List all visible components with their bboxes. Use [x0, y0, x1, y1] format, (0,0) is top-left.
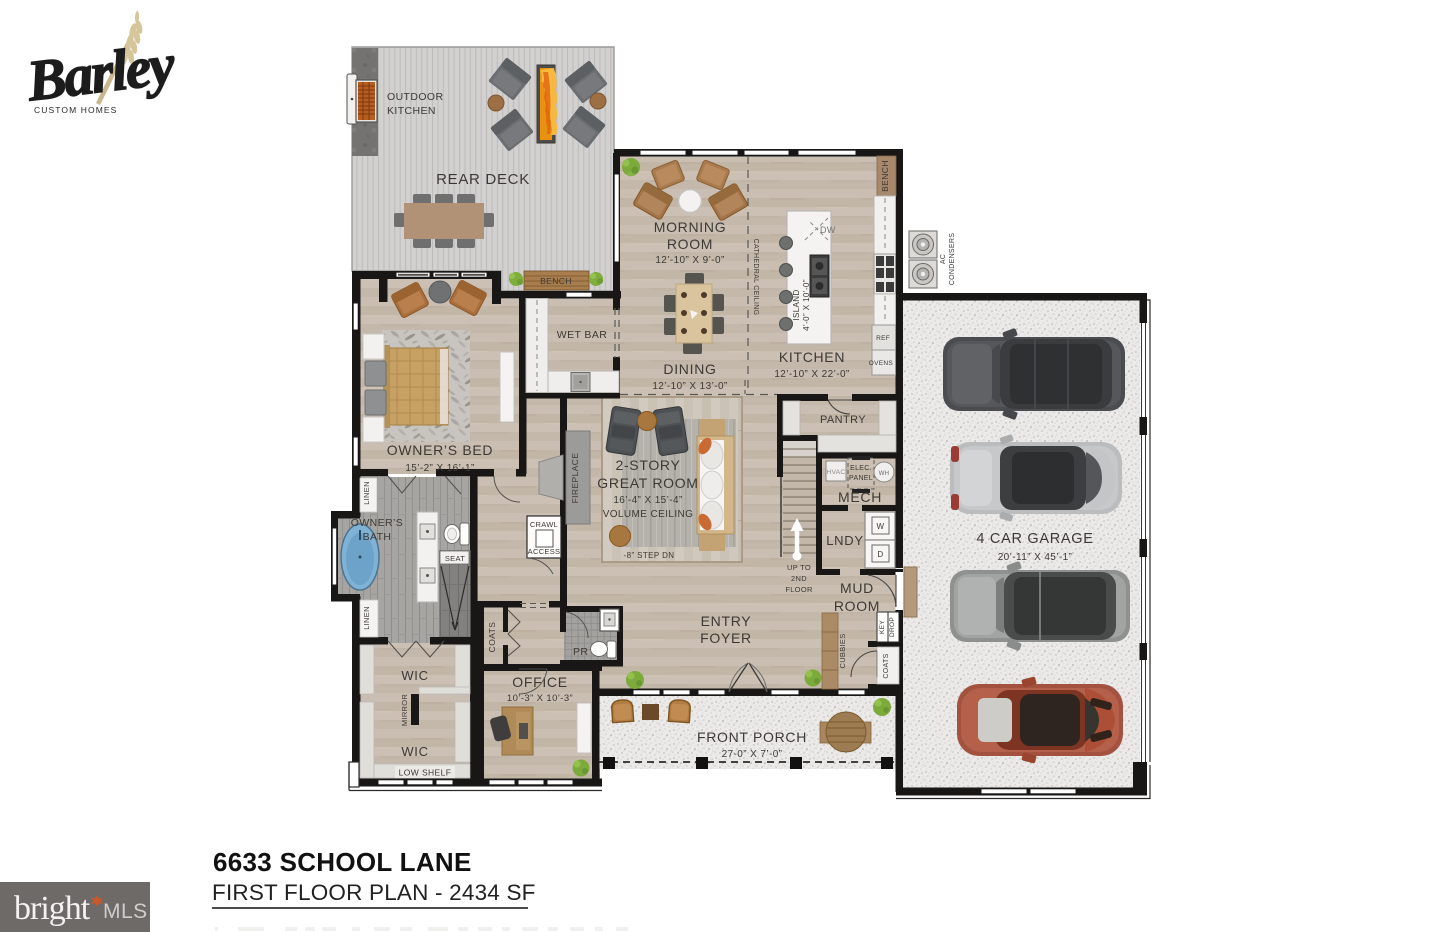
svg-text:bright: bright	[14, 890, 91, 927]
svg-text:PANEL: PANEL	[849, 475, 873, 482]
svg-text:LNDY: LNDY	[826, 533, 863, 548]
svg-text:LINEN: LINEN	[362, 606, 371, 630]
svg-text:FRONT PORCH: FRONT PORCH	[697, 729, 807, 745]
svg-text:MUD: MUD	[840, 580, 874, 596]
svg-text:-8” STEP DN: -8” STEP DN	[624, 551, 675, 560]
svg-text:KITCHEN: KITCHEN	[387, 105, 436, 117]
svg-text:MORNING: MORNING	[654, 219, 727, 235]
svg-text:12’-10” X 13’-0”: 12’-10” X 13’-0”	[652, 381, 727, 392]
svg-text:AC: AC	[940, 254, 947, 264]
svg-text:10’-3” X 10’-3”: 10’-3” X 10’-3”	[507, 693, 573, 704]
svg-text:12’-10” X 9’-0”: 12’-10” X 9’-0”	[655, 255, 724, 266]
svg-text:D: D	[877, 550, 883, 559]
svg-text:WH: WH	[879, 471, 890, 477]
svg-text:W: W	[877, 522, 885, 531]
svg-text:LINEN: LINEN	[362, 481, 371, 505]
svg-text:MECH: MECH	[838, 489, 882, 505]
svg-text:REAR DECK: REAR DECK	[436, 171, 530, 188]
svg-text:27-0” X 7’-0”: 27-0” X 7’-0”	[722, 749, 783, 760]
svg-text:LOW SHELF: LOW SHELF	[399, 768, 452, 778]
svg-text:DW: DW	[820, 225, 836, 235]
svg-text:CUSTOM HOMES: CUSTOM HOMES	[34, 105, 117, 115]
svg-text:FIREPLACE: FIREPLACE	[570, 453, 580, 504]
svg-text:CRAWL: CRAWL	[530, 520, 558, 529]
svg-text:12’-10” X 22’-0”: 12’-10” X 22’-0”	[774, 369, 849, 380]
svg-text:DINING: DINING	[663, 361, 716, 377]
svg-text:ISLAND: ISLAND	[792, 289, 801, 320]
svg-text:COATS: COATS	[883, 653, 890, 678]
svg-text:SEAT: SEAT	[445, 554, 465, 563]
svg-text:WET BAR: WET BAR	[557, 329, 607, 341]
svg-text:OVENS: OVENS	[869, 360, 894, 367]
svg-text:ROOM: ROOM	[667, 236, 713, 252]
svg-text:BENCH: BENCH	[540, 276, 572, 286]
svg-text:DROP: DROP	[889, 617, 896, 637]
svg-text:BENCH: BENCH	[880, 160, 890, 192]
svg-text:MIRROR: MIRROR	[400, 694, 409, 726]
svg-text:4’-0” X 10’-0”: 4’-0” X 10’-0”	[802, 279, 811, 331]
svg-text:MLS: MLS	[103, 900, 148, 923]
svg-text:OUTDOOR: OUTDOOR	[387, 91, 443, 103]
svg-text:CATHEDRAL CEILING: CATHEDRAL CEILING	[752, 239, 759, 316]
svg-text:WIC: WIC	[401, 744, 428, 759]
svg-text:FOYER: FOYER	[700, 630, 752, 646]
svg-text:OWNER’S BED: OWNER’S BED	[387, 442, 494, 458]
svg-text:4 CAR GARAGE: 4 CAR GARAGE	[976, 531, 1093, 547]
svg-text:BATH: BATH	[363, 531, 392, 543]
svg-text:6633 SCHOOL LANE: 6633 SCHOOL LANE	[213, 847, 472, 877]
svg-text:20’-11” X 45’-1”: 20’-11” X 45’-1”	[998, 552, 1073, 563]
svg-text:VOLUME CEILING: VOLUME CEILING	[603, 509, 694, 520]
svg-text:KEY: KEY	[879, 620, 886, 634]
svg-text:OWNER’S: OWNER’S	[351, 517, 403, 529]
svg-text:ACCESS: ACCESS	[528, 547, 561, 556]
svg-text:FLOOR: FLOOR	[785, 585, 813, 594]
svg-text:PR: PR	[573, 646, 588, 658]
svg-text:CUBBIES: CUBBIES	[838, 633, 847, 668]
svg-text:2ND: 2ND	[791, 574, 807, 583]
svg-text:2-STORY: 2-STORY	[615, 457, 680, 473]
svg-text:KITCHEN: KITCHEN	[779, 349, 845, 365]
svg-text:15’-2” X 16’-1”: 15’-2” X 16’-1”	[405, 463, 474, 474]
svg-text:GREAT ROOM: GREAT ROOM	[597, 475, 698, 491]
svg-text:FIRST FLOOR PLAN - 2434 SF: FIRST FLOOR PLAN - 2434 SF	[212, 880, 536, 905]
svg-text:OFFICE: OFFICE	[512, 674, 568, 690]
svg-text:PANTRY: PANTRY	[820, 414, 866, 426]
svg-text:ELEC.: ELEC.	[850, 465, 872, 472]
svg-text:UP TO: UP TO	[787, 563, 811, 572]
svg-text:ENTRY: ENTRY	[701, 613, 752, 629]
svg-text:COATS: COATS	[487, 622, 497, 653]
svg-text:HVAC: HVAC	[827, 469, 846, 476]
svg-text:16’-4” X 15’-4”: 16’-4” X 15’-4”	[613, 495, 682, 506]
svg-text:WIC: WIC	[401, 668, 428, 683]
svg-text:ROOM: ROOM	[834, 598, 880, 614]
svg-text:REF: REF	[876, 335, 890, 342]
svg-text:CONDENSERS: CONDENSERS	[949, 233, 956, 285]
